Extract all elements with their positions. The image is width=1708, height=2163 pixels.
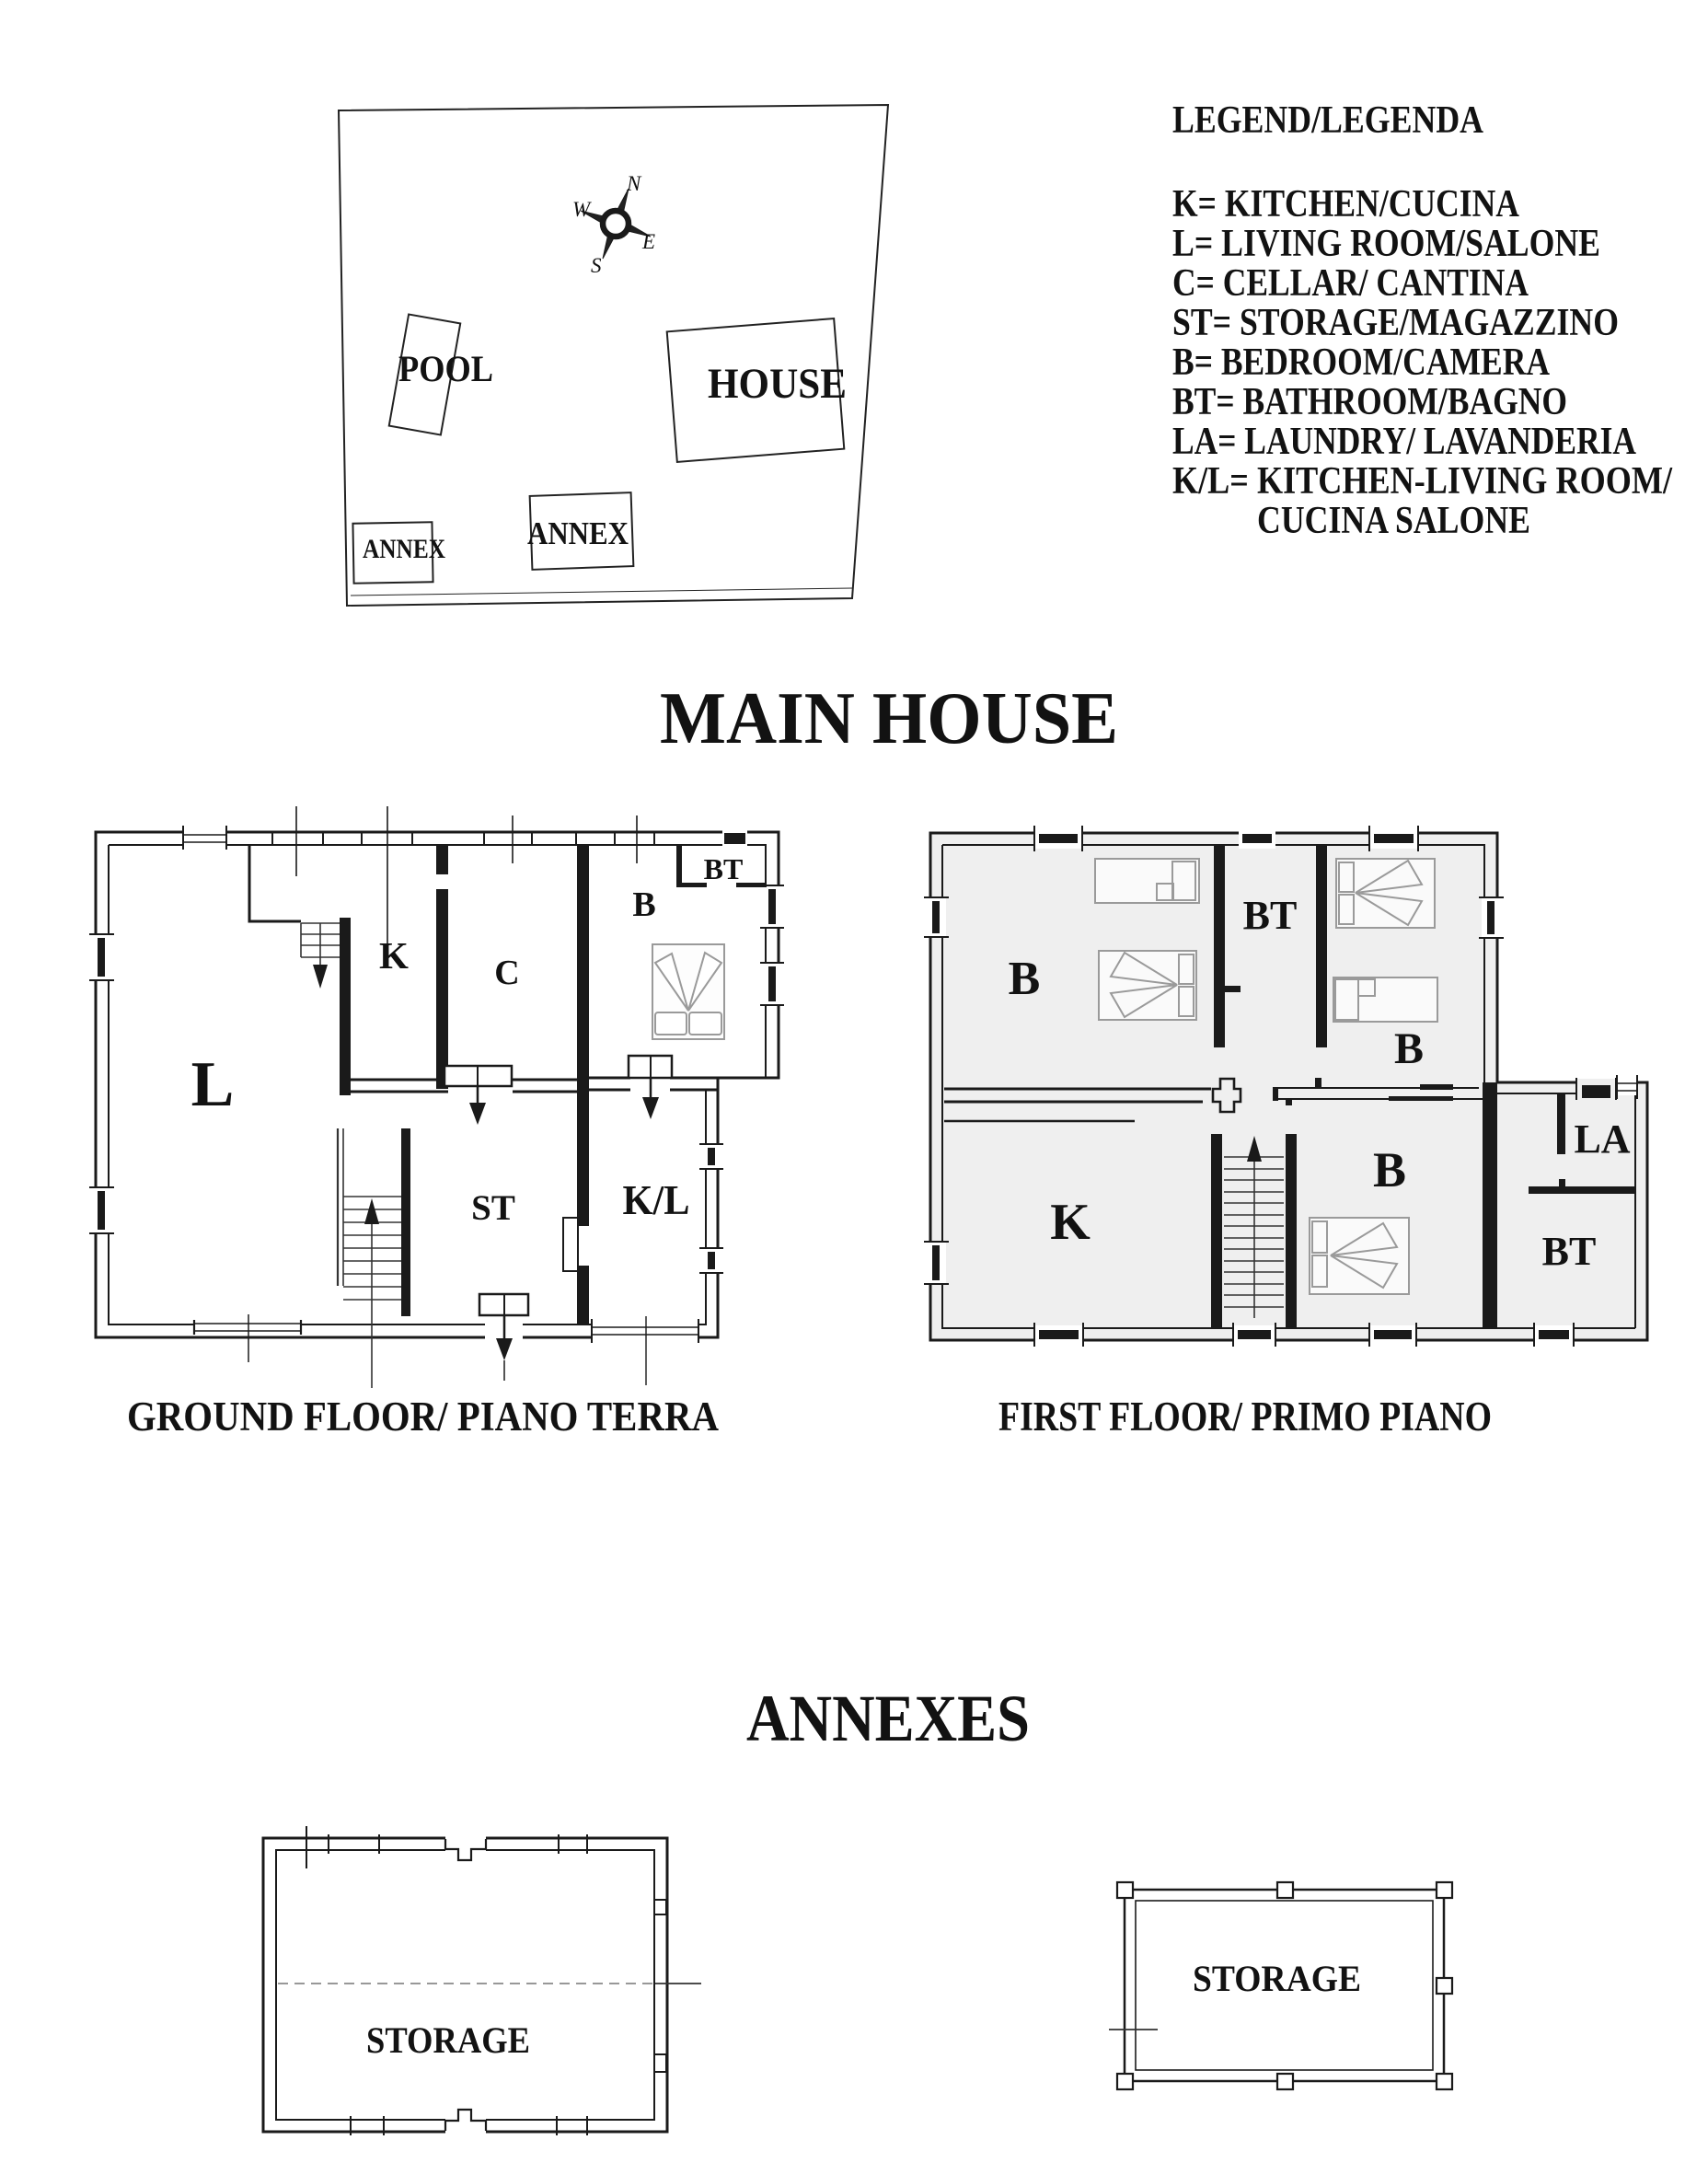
svg-text:STORAGE: STORAGE [1193,1958,1361,1999]
svg-text:K= KITCHEN/CUCINA: K= KITCHEN/CUCINA [1172,183,1520,226]
svg-text:POOL: POOL [398,348,493,389]
svg-text:ANNEXES: ANNEXES [746,1682,1030,1755]
svg-text:N: N [626,172,642,195]
svg-text:CUCINA SALONE: CUCINA SALONE [1257,500,1530,542]
svg-text:ST= STORAGE/MAGAZZINO: ST= STORAGE/MAGAZZINO [1172,302,1619,344]
svg-text:GROUND FLOOR/ PIANO TERRA: GROUND FLOOR/ PIANO TERRA [127,1394,719,1440]
svg-text:L= LIVING ROOM/SALONE: L= LIVING ROOM/SALONE [1172,223,1600,265]
svg-text:K/L: K/L [623,1176,690,1223]
svg-text:B: B [1394,1024,1424,1073]
svg-text:LA: LA [1574,1116,1630,1162]
svg-text:MAIN HOUSE: MAIN HOUSE [660,677,1118,759]
svg-text:BT= BATHROOM/BAGNO: BT= BATHROOM/BAGNO [1172,381,1567,423]
svg-text:C: C [494,954,519,992]
svg-text:LEGEND/LEGENDA: LEGEND/LEGENDA [1172,99,1484,142]
svg-text:BT: BT [1243,893,1298,938]
svg-text:B: B [1009,953,1041,1005]
svg-text:B: B [1373,1142,1406,1197]
svg-text:HOUSE: HOUSE [708,360,847,408]
svg-text:K: K [1050,1194,1091,1251]
svg-text:K/L= KITCHEN-LIVING ROOM/: K/L= KITCHEN-LIVING ROOM/ [1172,460,1673,503]
svg-text:E: E [641,230,655,253]
svg-text:B: B [632,885,655,924]
svg-text:LA= LAUNDRY/ LAVANDERIA: LA= LAUNDRY/ LAVANDERIA [1172,421,1637,463]
svg-text:ST: ST [471,1188,515,1228]
svg-text:FIRST FLOOR/ PRIMO PIANO: FIRST FLOOR/ PRIMO PIANO [998,1394,1492,1440]
svg-text:C= CELLAR/ CANTINA: C= CELLAR/ CANTINA [1172,262,1529,305]
svg-text:W: W [572,198,592,221]
svg-text:L: L [191,1049,235,1120]
svg-text:K: K [379,934,409,977]
svg-text:ANNEX: ANNEX [363,534,445,564]
svg-text:B= BEDROOM/CAMERA: B= BEDROOM/CAMERA [1172,341,1551,384]
svg-text:BT: BT [704,852,744,885]
svg-text:ANNEX: ANNEX [527,515,629,551]
svg-text:S: S [591,254,602,277]
svg-text:BT: BT [1542,1229,1597,1274]
svg-text:STORAGE: STORAGE [366,2019,530,2061]
